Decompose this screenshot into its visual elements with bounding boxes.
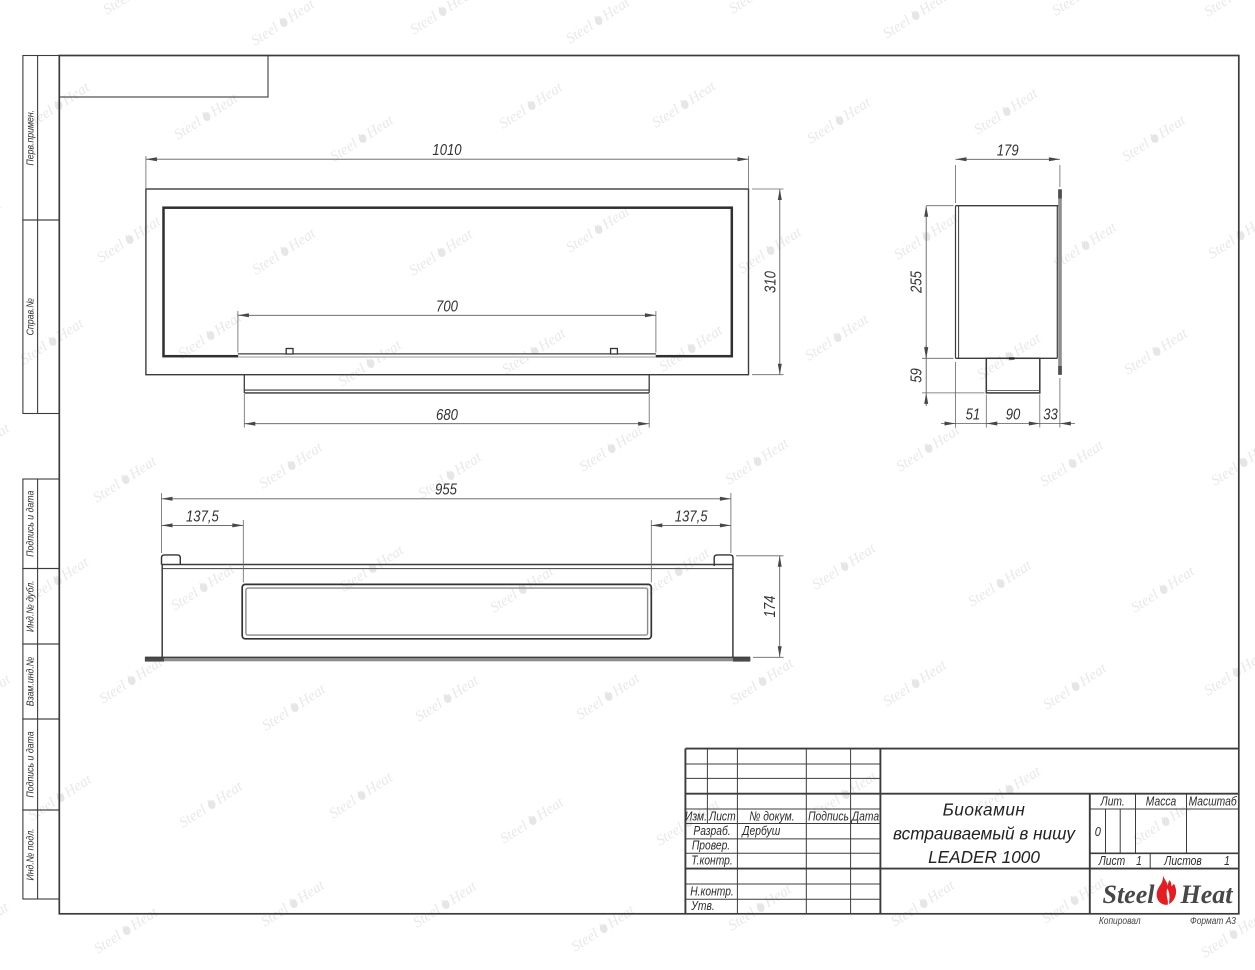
svg-text:Копировал: Копировал bbox=[1099, 915, 1141, 927]
svg-text:Масштаб: Масштаб bbox=[1189, 793, 1237, 809]
svg-text:Формат А3: Формат А3 bbox=[1190, 915, 1237, 927]
svg-text:Провер.: Провер. bbox=[692, 837, 730, 853]
svg-text:1010: 1010 bbox=[432, 142, 462, 159]
svg-text:137,5: 137,5 bbox=[675, 508, 709, 525]
svg-text:174: 174 bbox=[762, 596, 779, 618]
svg-text:310: 310 bbox=[762, 270, 779, 293]
svg-text:Steel: Steel bbox=[1103, 880, 1156, 909]
svg-text:Подпись и дата: Подпись и дата bbox=[25, 731, 37, 797]
svg-text:Т.контр.: Т.контр. bbox=[691, 852, 733, 868]
svg-text:Листов: Листов bbox=[1163, 853, 1201, 869]
svg-text:LEADER 1000: LEADER 1000 bbox=[928, 847, 1040, 867]
svg-text:Перв.примен.: Перв.примен. bbox=[25, 110, 37, 166]
svg-text:Биокамин: Биокамин bbox=[943, 800, 1026, 820]
svg-text:33: 33 bbox=[1043, 406, 1058, 423]
svg-text:№ докум.: № докум. bbox=[749, 808, 794, 824]
svg-text:255: 255 bbox=[909, 270, 926, 294]
svg-text:955: 955 bbox=[435, 481, 458, 498]
svg-text:680: 680 bbox=[436, 407, 459, 424]
svg-text:Н.контр.: Н.контр. bbox=[690, 883, 734, 899]
svg-text:0: 0 bbox=[1095, 824, 1101, 839]
svg-text:Изм.: Изм. bbox=[685, 808, 707, 824]
svg-text:Лит.: Лит. bbox=[1100, 793, 1125, 809]
svg-text:Инд.№ дубл.: Инд.№ дубл. bbox=[25, 580, 37, 632]
svg-text:59: 59 bbox=[909, 368, 926, 383]
svg-text:Масса: Масса bbox=[1146, 793, 1177, 809]
svg-text:179: 179 bbox=[997, 142, 1019, 159]
svg-text:Разраб.: Разраб. bbox=[693, 823, 730, 839]
svg-text:Heat: Heat bbox=[1180, 880, 1234, 909]
svg-text:1: 1 bbox=[1136, 853, 1142, 869]
svg-text:Подпись и дата: Подпись и дата bbox=[25, 491, 37, 557]
svg-text:51: 51 bbox=[966, 406, 981, 423]
svg-text:Справ.№: Справ.№ bbox=[25, 298, 37, 335]
svg-text:Взам.инд.№: Взам.инд.№ bbox=[25, 657, 37, 707]
svg-text:90: 90 bbox=[1006, 406, 1021, 423]
svg-text:Дербуш: Дербуш bbox=[741, 823, 781, 839]
svg-text:Инд.№ подл.: Инд.№ подл. bbox=[25, 828, 37, 880]
svg-text:встраиваемый в нишу: встраиваемый в нишу bbox=[893, 824, 1076, 844]
svg-text:700: 700 bbox=[436, 298, 459, 315]
svg-text:Лист: Лист bbox=[1098, 853, 1125, 869]
svg-text:Дата: Дата bbox=[850, 808, 879, 824]
svg-text:Лист: Лист bbox=[708, 808, 735, 824]
svg-text:137,5: 137,5 bbox=[186, 508, 220, 525]
svg-text:1: 1 bbox=[1224, 853, 1230, 869]
svg-text:Утв.: Утв. bbox=[690, 898, 714, 914]
svg-text:Подпись: Подпись bbox=[808, 808, 849, 824]
